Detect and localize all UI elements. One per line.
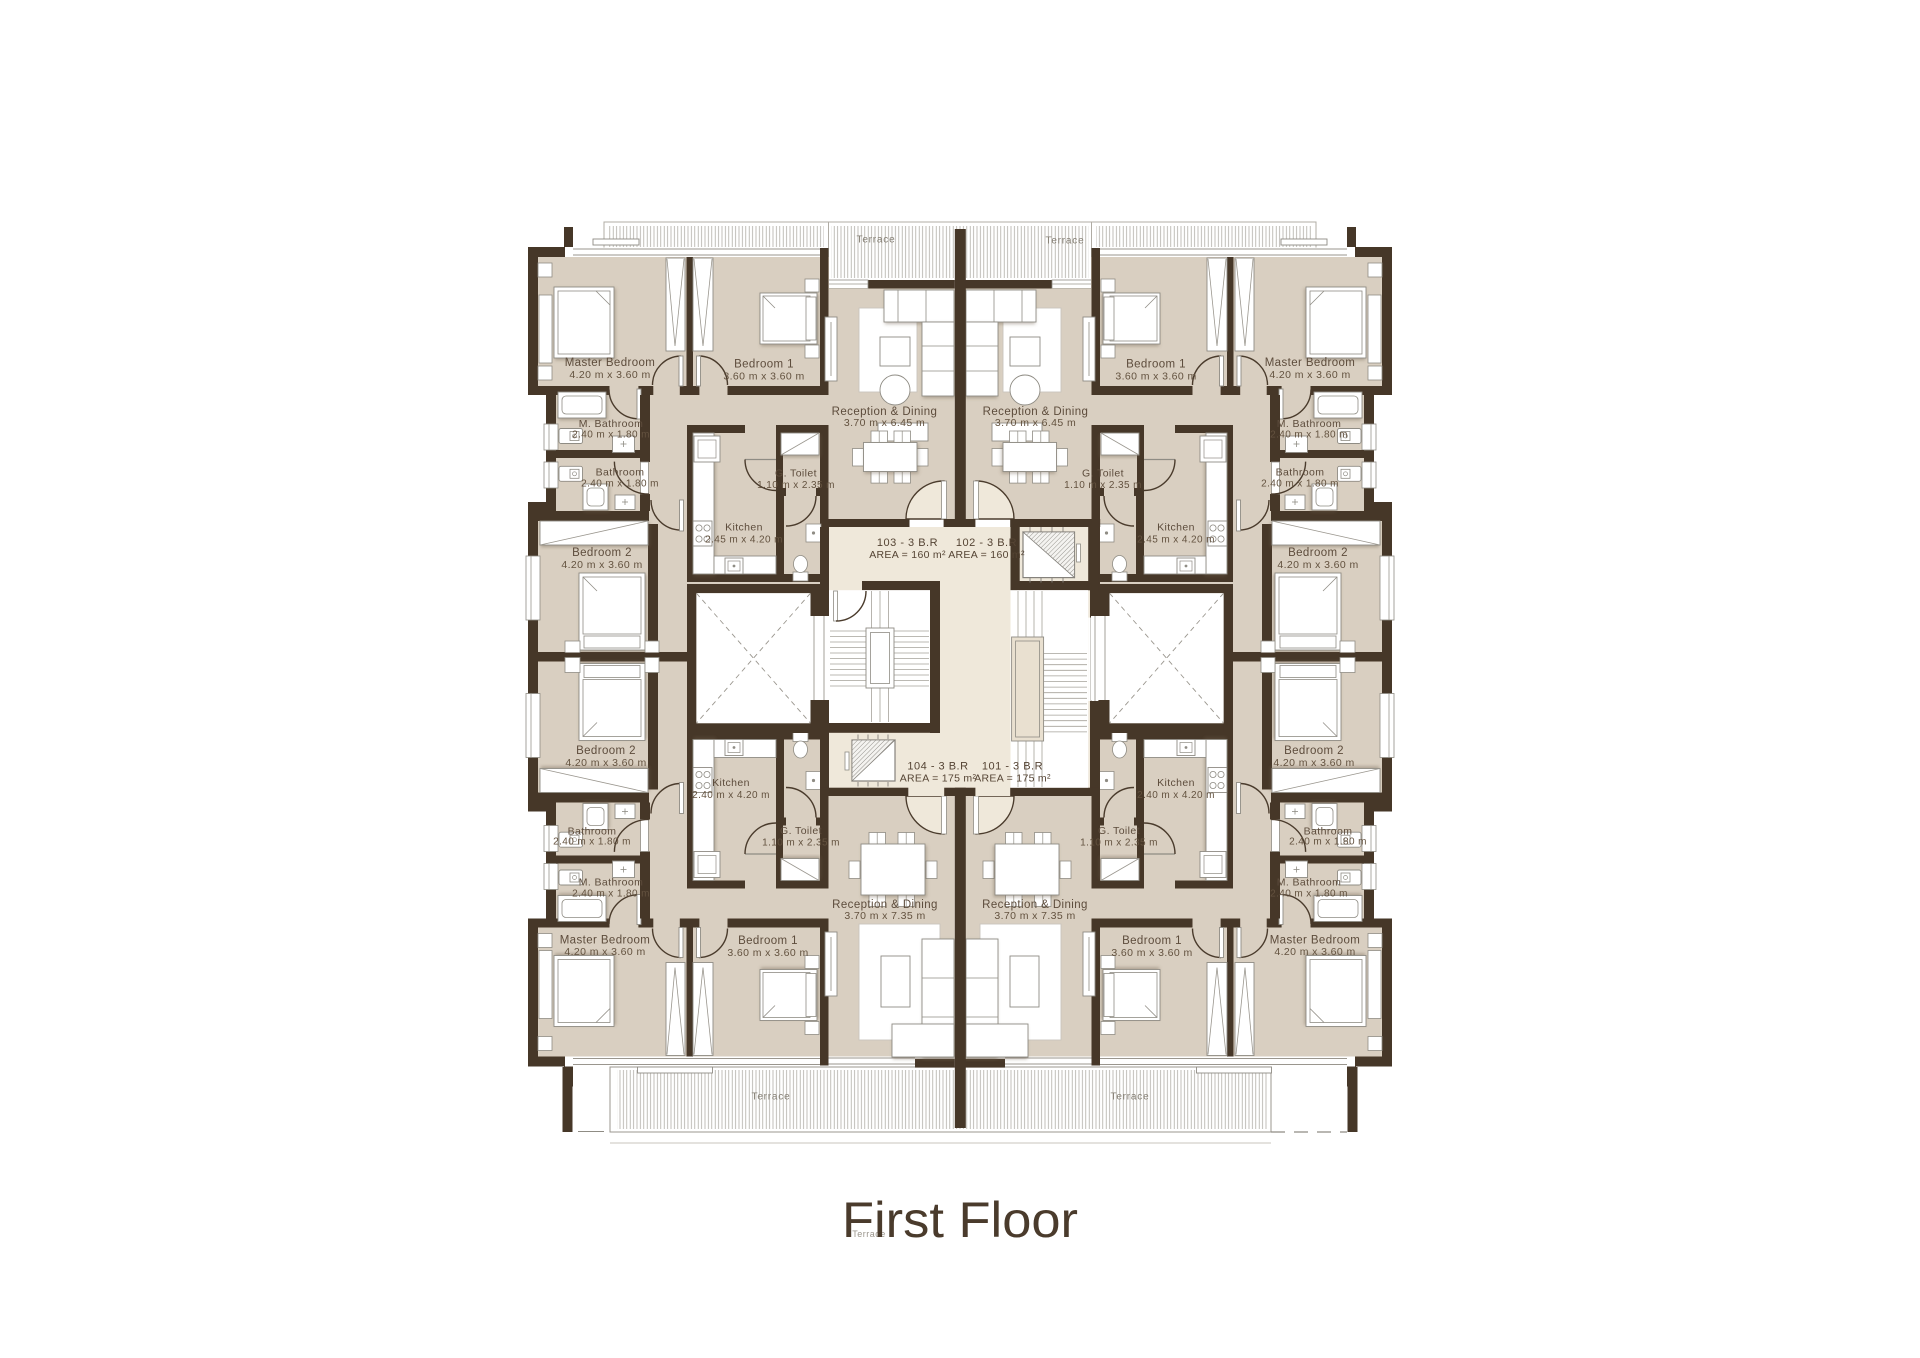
svg-text:2.45 m x 4.20 m: 2.45 m x 4.20 m (1137, 535, 1215, 546)
svg-text:3.60 m x 3.60 m: 3.60 m x 3.60 m (723, 371, 804, 383)
svg-text:Kitchen: Kitchen (712, 777, 750, 789)
svg-text:4.20 m x 3.60 m: 4.20 m x 3.60 m (1277, 559, 1358, 571)
svg-text:Terrace: Terrace (752, 1092, 791, 1103)
svg-text:2.40 m x 1.80 m: 2.40 m x 1.80 m (581, 479, 659, 490)
svg-text:104 - 3 B.R: 104 - 3 B.R (907, 761, 968, 773)
svg-text:First Floor: First Floor (842, 1192, 1078, 1248)
svg-text:1.10 m x 2.35 m: 1.10 m x 2.35 m (762, 838, 840, 849)
svg-text:Bedroom 1: Bedroom 1 (734, 359, 794, 371)
svg-text:3.70 m x 7.35 m: 3.70 m x 7.35 m (844, 910, 925, 922)
svg-text:Kitchen: Kitchen (1157, 522, 1195, 534)
svg-text:101 - 3 B.R: 101 - 3 B.R (982, 761, 1043, 773)
svg-text:103 - 3 B.R: 103 - 3 B.R (877, 537, 938, 549)
svg-text:M. Bathroom: M. Bathroom (579, 877, 644, 889)
svg-text:G. Toilet: G. Toilet (1082, 468, 1124, 480)
svg-text:AREA = 160 m²: AREA = 160 m² (948, 549, 1025, 561)
svg-text:Master Bedroom: Master Bedroom (560, 935, 651, 947)
svg-text:Bedroom 2: Bedroom 2 (1284, 745, 1344, 757)
svg-text:4.20 m x 3.60 m: 4.20 m x 3.60 m (569, 369, 650, 381)
svg-text:3.70 m x 6.45 m: 3.70 m x 6.45 m (844, 417, 925, 429)
svg-text:M. Bathroom: M. Bathroom (1277, 877, 1342, 889)
svg-text:3.60 m x 3.60 m: 3.60 m x 3.60 m (1111, 947, 1192, 959)
svg-text:1.10 m x 2.35 m: 1.10 m x 2.35 m (757, 480, 835, 491)
svg-text:G. Toilet: G. Toilet (780, 825, 822, 837)
svg-text:Bathroom: Bathroom (596, 467, 645, 479)
svg-text:Bedroom 1: Bedroom 1 (1122, 935, 1182, 947)
svg-text:G. Toilet: G. Toilet (1098, 825, 1140, 837)
svg-text:Bathroom: Bathroom (1276, 467, 1325, 479)
svg-text:2.40 m x 1.80 m: 2.40 m x 1.80 m (572, 889, 650, 900)
svg-text:3.70 m x 7.35 m: 3.70 m x 7.35 m (994, 910, 1075, 922)
svg-text:Bedroom 2: Bedroom 2 (572, 547, 632, 559)
svg-text:M. Bathroom: M. Bathroom (579, 418, 644, 430)
svg-text:3.70 m x 6.45 m: 3.70 m x 6.45 m (995, 417, 1076, 429)
svg-text:2.40 m x 1.80 m: 2.40 m x 1.80 m (572, 430, 650, 441)
svg-text:4.20 m x 3.60 m: 4.20 m x 3.60 m (1269, 369, 1350, 381)
svg-text:Terrace: Terrace (857, 235, 896, 246)
svg-text:4.20 m x 3.60 m: 4.20 m x 3.60 m (1274, 946, 1355, 958)
svg-text:2.40 m x 4.20 m: 2.40 m x 4.20 m (1137, 790, 1215, 801)
svg-text:Terrace: Terrace (1046, 236, 1085, 247)
svg-text:2.40 m x 1.80 m: 2.40 m x 1.80 m (1270, 889, 1348, 900)
svg-text:Kitchen: Kitchen (1157, 777, 1195, 789)
svg-text:Bedroom 1: Bedroom 1 (738, 935, 798, 947)
svg-text:M. Bathroom: M. Bathroom (1277, 418, 1342, 430)
svg-text:2.40 m x 1.80 m: 2.40 m x 1.80 m (1289, 837, 1367, 848)
svg-text:4.20 m x 3.60 m: 4.20 m x 3.60 m (561, 559, 642, 571)
svg-text:1.10 m x 2.35 m: 1.10 m x 2.35 m (1064, 480, 1142, 491)
svg-text:G. Toilet: G. Toilet (775, 468, 817, 480)
svg-text:AREA = 175 m²: AREA = 175 m² (974, 773, 1051, 785)
svg-text:2.40 m x 1.80 m: 2.40 m x 1.80 m (1270, 430, 1348, 441)
svg-text:2.40 m x 4.20 m: 2.40 m x 4.20 m (692, 790, 770, 801)
svg-text:4.20 m x 3.60 m: 4.20 m x 3.60 m (1273, 757, 1354, 769)
svg-text:Master Bedroom: Master Bedroom (1270, 935, 1361, 947)
svg-text:1.10 m x 2.35 m: 1.10 m x 2.35 m (1080, 838, 1158, 849)
svg-text:2.40 m x 1.80 m: 2.40 m x 1.80 m (1261, 479, 1339, 490)
svg-text:2.45 m x 4.20 m: 2.45 m x 4.20 m (705, 535, 783, 546)
svg-text:AREA = 175 m²: AREA = 175 m² (900, 773, 977, 785)
svg-text:3.60 m x 3.60 m: 3.60 m x 3.60 m (727, 947, 808, 959)
svg-text:Master Bedroom: Master Bedroom (565, 357, 656, 369)
svg-text:Terrace: Terrace (1111, 1092, 1150, 1103)
svg-text:4.20 m x 3.60 m: 4.20 m x 3.60 m (565, 757, 646, 769)
svg-text:4.20 m x 3.60 m: 4.20 m x 3.60 m (564, 946, 645, 958)
svg-text:3.60 m x 3.60 m: 3.60 m x 3.60 m (1115, 371, 1196, 383)
svg-text:Kitchen: Kitchen (725, 522, 763, 534)
svg-text:Bedroom 2: Bedroom 2 (576, 745, 636, 757)
svg-text:102 - 3 B.R: 102 - 3 B.R (956, 537, 1017, 549)
svg-text:Bedroom 1: Bedroom 1 (1126, 359, 1186, 371)
svg-text:AREA = 160 m²: AREA = 160 m² (869, 549, 946, 561)
svg-text:Bedroom 2: Bedroom 2 (1288, 547, 1348, 559)
svg-text:Master Bedroom: Master Bedroom (1265, 357, 1356, 369)
svg-text:2.40 m x 1.80 m: 2.40 m x 1.80 m (553, 837, 631, 848)
